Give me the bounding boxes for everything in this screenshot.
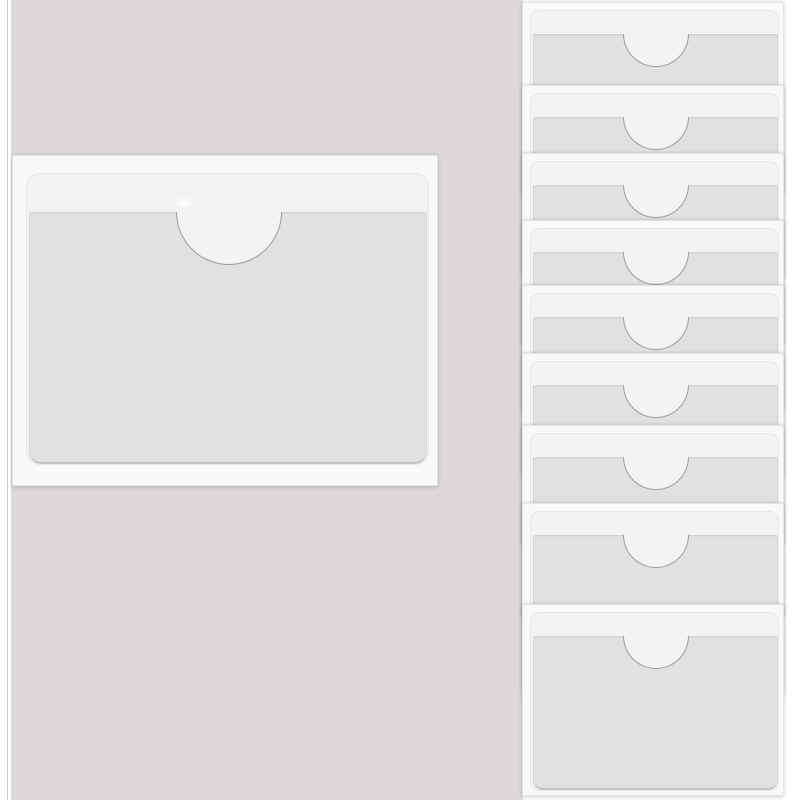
left-margin-crease-line (7, 0, 8, 800)
card-pocket-sleeve-large (12, 155, 438, 486)
adhesive-backing-strip (530, 612, 779, 791)
glare-highlight (176, 199, 192, 206)
card-pocket-sleeve-stack-9 (522, 604, 784, 796)
adhesive-backing-strip (26, 173, 429, 465)
photo-canvas (0, 0, 800, 800)
